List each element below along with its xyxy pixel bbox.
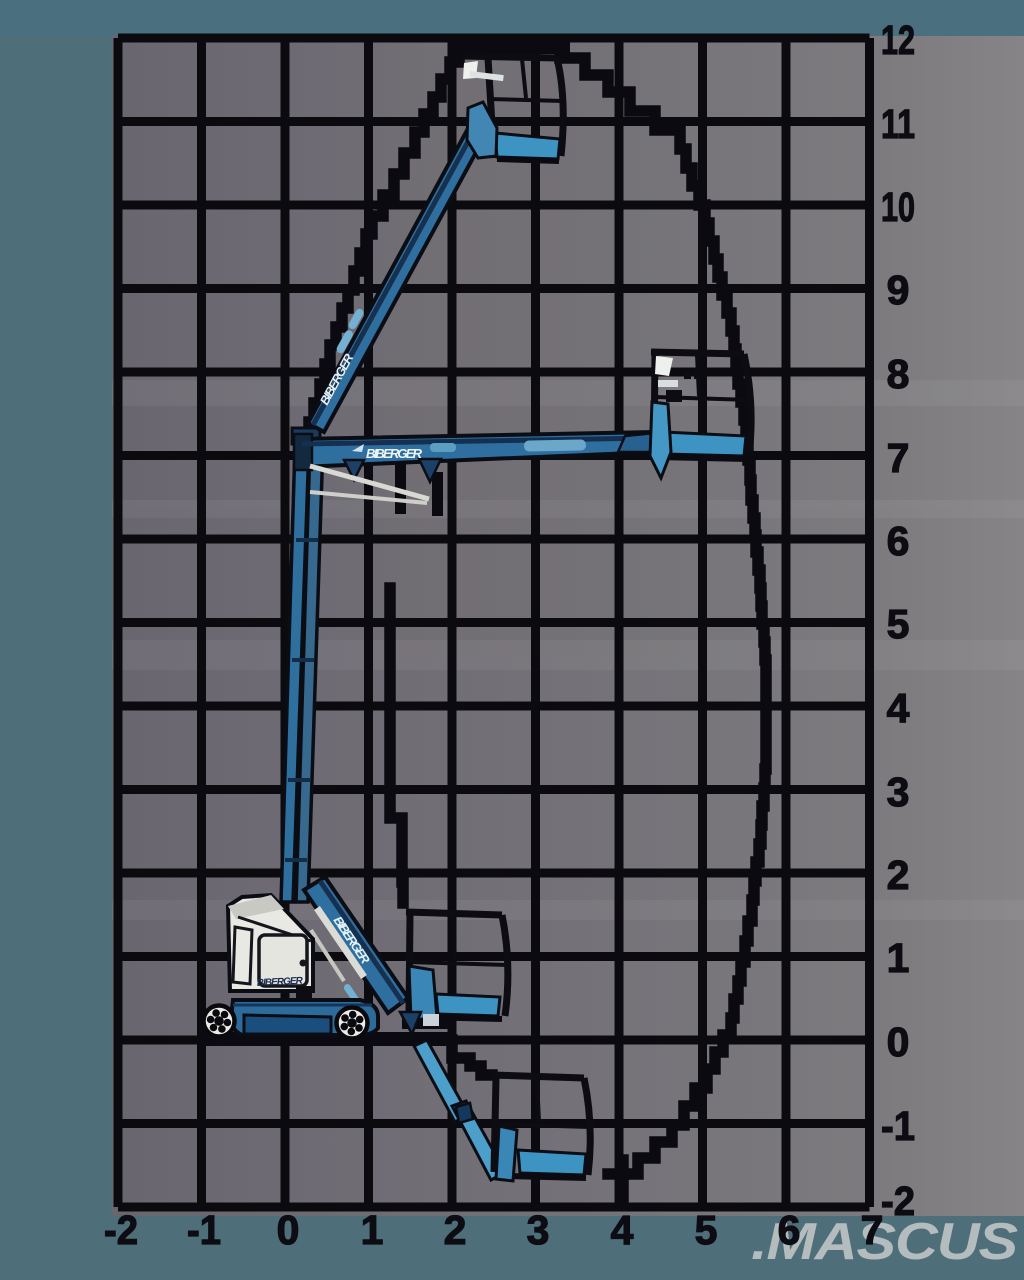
svg-text:0: 0 [277,1207,300,1253]
svg-text:-1: -1 [187,1207,221,1253]
svg-text:BIBERGER: BIBERGER [366,446,423,461]
svg-text:11: 11 [881,101,915,147]
svg-text:-2: -2 [881,1178,915,1224]
svg-text:-1: -1 [881,1103,915,1149]
svg-text:2: 2 [444,1207,467,1253]
svg-text:5: 5 [695,1207,718,1253]
svg-text:7: 7 [887,435,910,481]
svg-text:0: 0 [887,1019,910,1065]
svg-text:-2: -2 [104,1207,138,1253]
svg-text:7: 7 [861,1207,884,1253]
svg-text:3: 3 [527,1207,550,1253]
svg-text:8: 8 [887,351,910,397]
svg-text:5: 5 [887,601,910,647]
svg-text:1: 1 [361,1207,384,1253]
svg-text:3: 3 [887,769,910,815]
svg-text:4: 4 [887,685,910,731]
svg-text:1: 1 [887,935,910,981]
svg-text:6: 6 [887,518,910,564]
svg-text:4: 4 [611,1207,634,1253]
svg-text:9: 9 [887,267,910,313]
svg-text:6: 6 [778,1207,801,1253]
svg-text:2: 2 [887,852,910,898]
svg-text:12: 12 [881,17,915,63]
svg-text:10: 10 [881,184,915,230]
